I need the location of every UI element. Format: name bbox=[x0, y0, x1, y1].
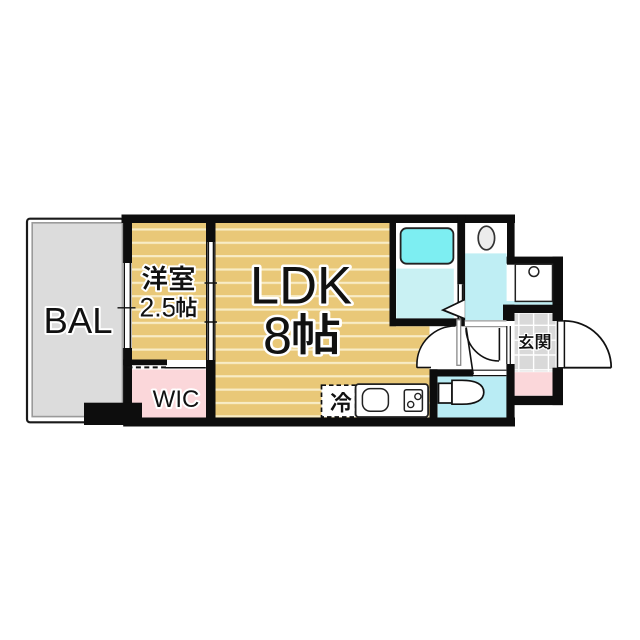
svg-text:BAL: BAL bbox=[44, 300, 113, 341]
svg-text:8: 8 bbox=[263, 308, 292, 366]
svg-text:2.5: 2.5 bbox=[140, 292, 177, 322]
svg-text:WIC: WIC bbox=[153, 386, 200, 413]
